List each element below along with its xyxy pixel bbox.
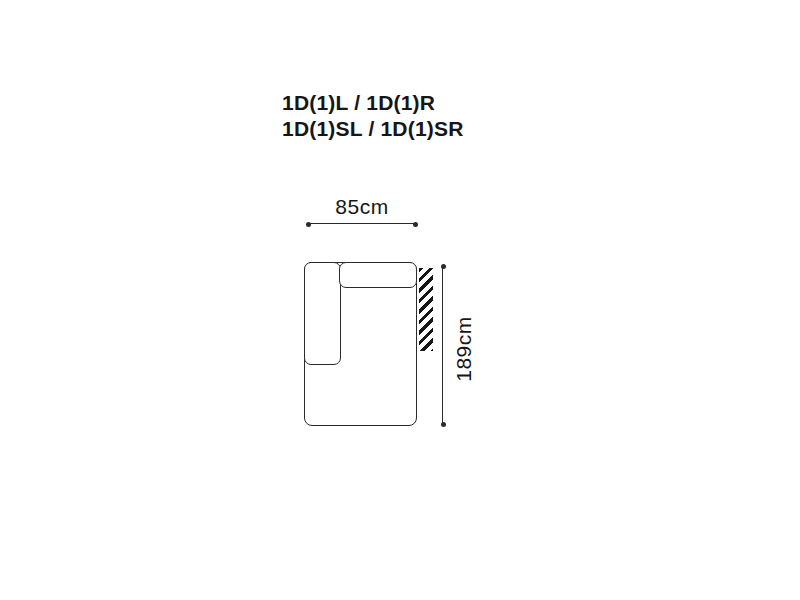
depth-dimension-endpoint-dot-top bbox=[441, 264, 446, 269]
sofa-top-backrest bbox=[339, 262, 417, 288]
depth-dimension-line bbox=[442, 266, 443, 424]
depth-dimension-label: 189cm bbox=[452, 289, 476, 409]
product-title-line-1: 1D(1)L / 1D(1)R bbox=[282, 90, 464, 116]
width-dimension-line bbox=[308, 223, 416, 224]
diagram-canvas: 1D(1)L / 1D(1)R 1D(1)SL / 1D(1)SR 85cm 1… bbox=[0, 0, 800, 600]
width-dimension-endpoint-dot-left bbox=[306, 222, 311, 227]
product-title: 1D(1)L / 1D(1)R 1D(1)SL / 1D(1)SR bbox=[282, 90, 464, 142]
depth-dimension-endpoint-dot-bottom bbox=[441, 422, 446, 427]
connection-hatch-icon bbox=[419, 268, 433, 351]
width-dimension-endpoint-dot-right bbox=[413, 222, 418, 227]
width-dimension-label: 85cm bbox=[308, 195, 416, 219]
sofa-left-armrest bbox=[304, 262, 341, 365]
product-title-line-2: 1D(1)SL / 1D(1)SR bbox=[282, 116, 464, 142]
